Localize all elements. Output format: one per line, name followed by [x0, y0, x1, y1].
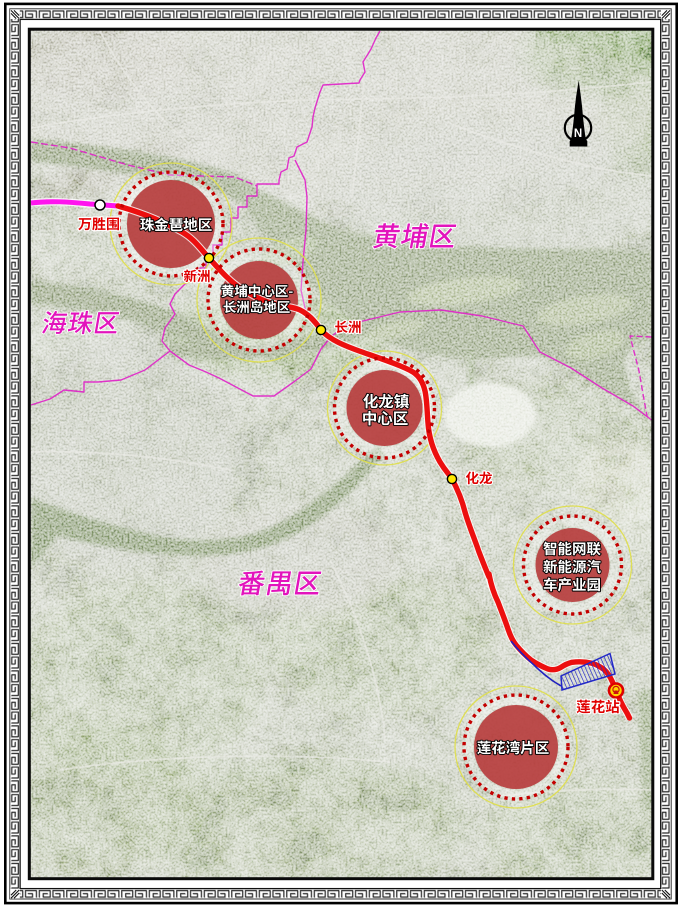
svg-text:N: N — [574, 128, 582, 140]
